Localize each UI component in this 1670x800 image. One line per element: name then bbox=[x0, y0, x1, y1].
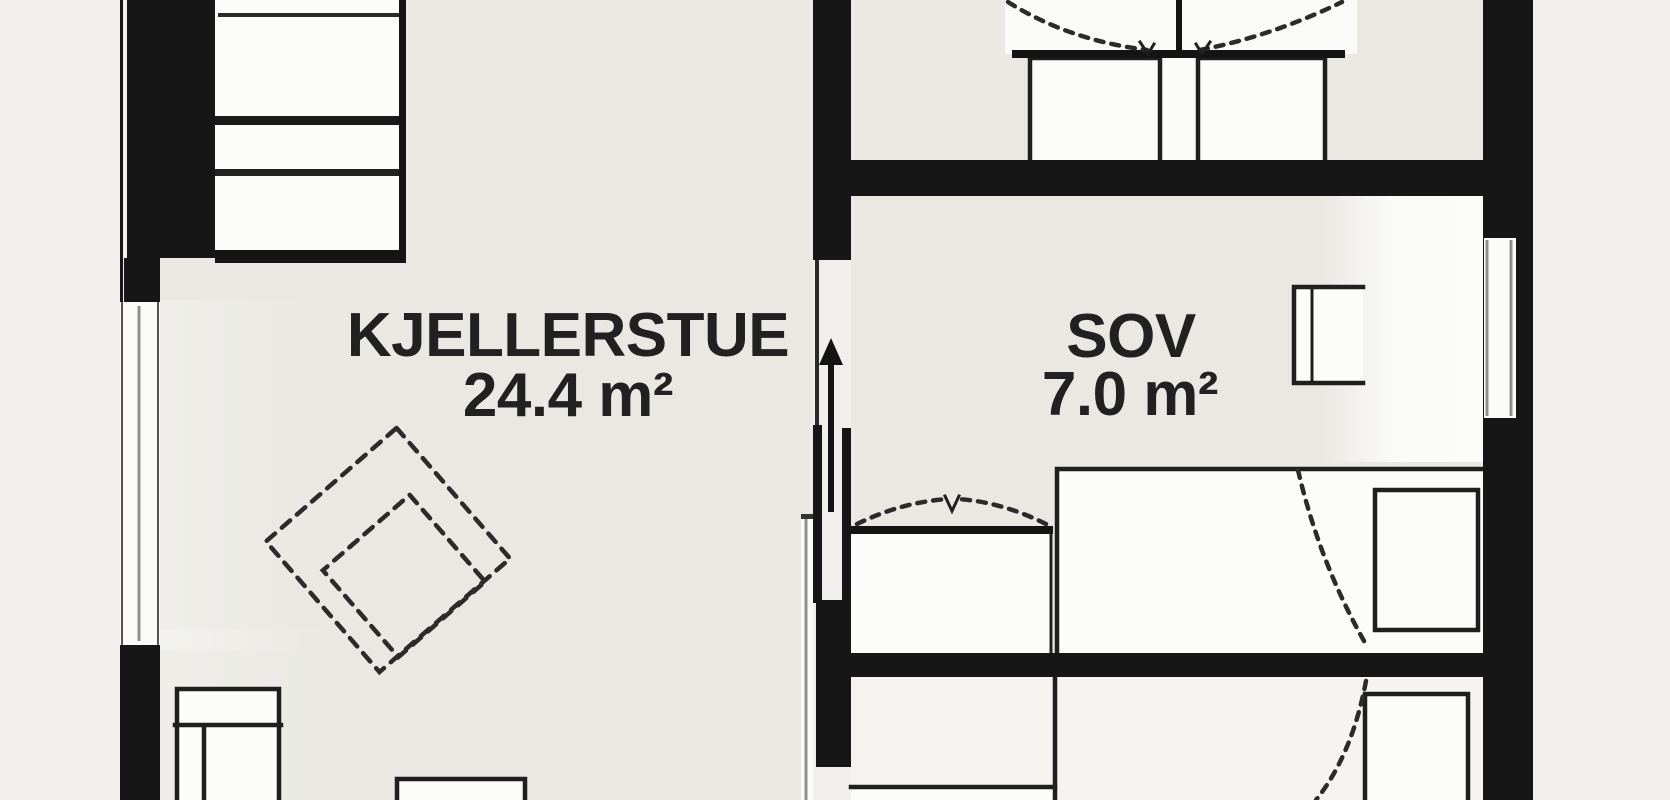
room-area-sov: 7.0 m² bbox=[1042, 360, 1218, 429]
middle-wall-jamb-right bbox=[842, 428, 851, 603]
closet-body bbox=[851, 530, 1053, 653]
arrow-head bbox=[819, 338, 843, 365]
left-wall-outer-face bbox=[120, 0, 123, 302]
middle-wall-thin-line bbox=[815, 260, 819, 427]
shelf-body bbox=[1294, 287, 1363, 383]
stairs-icon bbox=[215, 0, 406, 263]
sofa-icon bbox=[175, 687, 281, 800]
wardrobe-icon bbox=[1005, 0, 1357, 166]
wall-sov-lower bbox=[818, 653, 1533, 677]
middle-wall-bottom bbox=[816, 600, 851, 767]
left-wall-bottom bbox=[120, 645, 160, 800]
stair-tread-line bbox=[215, 169, 399, 176]
stair-tread-line bbox=[215, 116, 399, 125]
window-icon bbox=[120, 302, 160, 645]
wardrobe-box-right bbox=[1198, 58, 1325, 165]
wardrobe-box-left bbox=[1030, 58, 1160, 165]
stair-side-stringer bbox=[399, 0, 406, 263]
left-wall-segment bbox=[124, 258, 160, 304]
wall-hall-sov bbox=[851, 160, 1533, 196]
left-wall-top bbox=[127, 0, 215, 258]
window-icon bbox=[1484, 238, 1516, 418]
window-light-glow-left bbox=[160, 300, 310, 650]
stair-railing bbox=[801, 514, 813, 800]
side-table-icon bbox=[397, 777, 525, 800]
bed-icon-lower bbox=[1363, 692, 1470, 800]
wall-shelf-icon bbox=[1294, 287, 1363, 383]
up-arrow-icon bbox=[819, 338, 843, 512]
room-area-kjellerstue: 24.4 m² bbox=[463, 361, 673, 430]
room-name-kjellerstue: KJELLERSTUE bbox=[347, 301, 789, 370]
lower-counter bbox=[851, 789, 1055, 800]
middle-wall-top bbox=[813, 0, 851, 260]
stair-treads-area bbox=[215, 0, 406, 263]
railing-end-cap bbox=[801, 514, 813, 519]
sofa-body bbox=[175, 687, 281, 800]
middle-wall-jamb-left bbox=[813, 425, 822, 603]
floor-plan-drawing: KJELLERSTUE 24.4 m² SOV 7.0 m² bbox=[0, 0, 1670, 800]
bed-icon bbox=[1055, 467, 1483, 655]
wardrobe-gap bbox=[1160, 54, 1198, 166]
floor-plan: KJELLERSTUE 24.4 m² SOV 7.0 m² bbox=[0, 0, 1670, 800]
closet-front-line bbox=[847, 526, 1053, 534]
wardrobe-center-post bbox=[1176, 0, 1182, 52]
stair-bottom-edge bbox=[215, 250, 406, 263]
stair-tread-line bbox=[218, 13, 399, 17]
pillow-icon bbox=[1375, 490, 1478, 630]
